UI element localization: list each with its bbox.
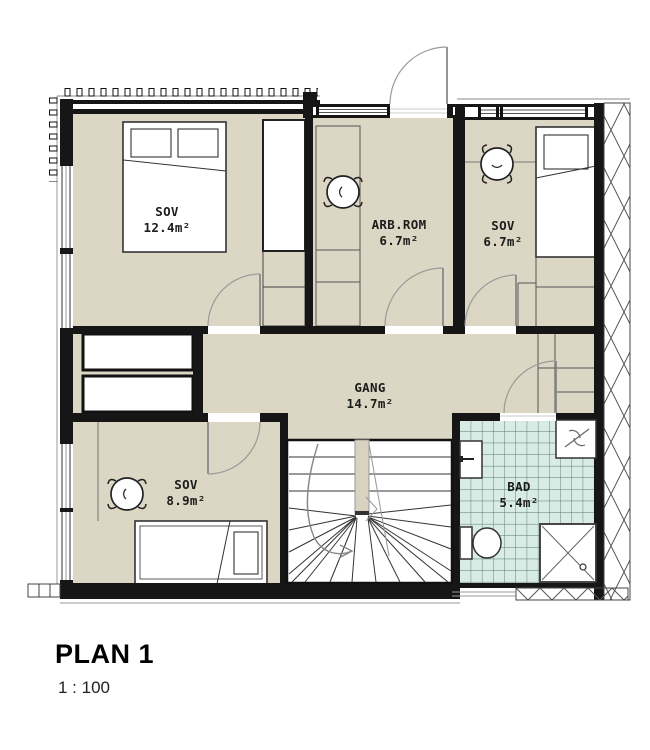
- staircase: [287, 440, 452, 583]
- stair-divider: [355, 440, 369, 514]
- window-left-1: [60, 166, 73, 248]
- single-bed-icon-right: [536, 127, 596, 257]
- wardrobe-icon: [263, 120, 305, 251]
- room-label-sov-small: SOV: [491, 218, 515, 233]
- room-area-sov-mid: 8.9m²: [166, 493, 205, 508]
- facade-hatch-right: [604, 103, 630, 600]
- room-label-sov-main: SOV: [155, 204, 179, 219]
- window-left-4: [60, 512, 73, 580]
- room-label-arbrom: ARB.ROM: [372, 217, 427, 232]
- room-area-sov-main: 12.4m²: [144, 220, 191, 235]
- floor-plan-canvas: SOV 12.4m² ARB.ROM 6.7m² SOV 6.7m² GANG …: [0, 0, 650, 750]
- room-label-sov-mid: SOV: [174, 477, 198, 492]
- room-area-arbrom: 6.7m²: [379, 233, 418, 248]
- room-label-bad: BAD: [507, 479, 530, 494]
- window-left-3: [60, 444, 73, 508]
- washbasin-icon: [556, 420, 596, 458]
- wall-cabinet-icon: [459, 441, 482, 478]
- toilet-icon: [460, 527, 501, 559]
- room-area-bad: 5.4m²: [499, 495, 538, 510]
- floor-plan-drawing: SOV 12.4m² ARB.ROM 6.7m² SOV 6.7m² GANG …: [0, 0, 650, 620]
- room-label-gang: GANG: [354, 380, 385, 395]
- plan-title: PLAN 1: [55, 639, 154, 670]
- room-area-gang: 14.7m²: [347, 396, 394, 411]
- single-bed-icon-bottom: [135, 521, 267, 584]
- shower-icon: [540, 524, 596, 582]
- door-balcony: [390, 47, 447, 118]
- window-left-2: [60, 254, 73, 328]
- window-bottom-left-sill: [28, 584, 60, 597]
- room-area-sov-small: 6.7m²: [483, 234, 522, 249]
- plan-scale: 1 : 100: [58, 678, 154, 698]
- title-block: PLAN 1 1 : 100: [55, 639, 154, 698]
